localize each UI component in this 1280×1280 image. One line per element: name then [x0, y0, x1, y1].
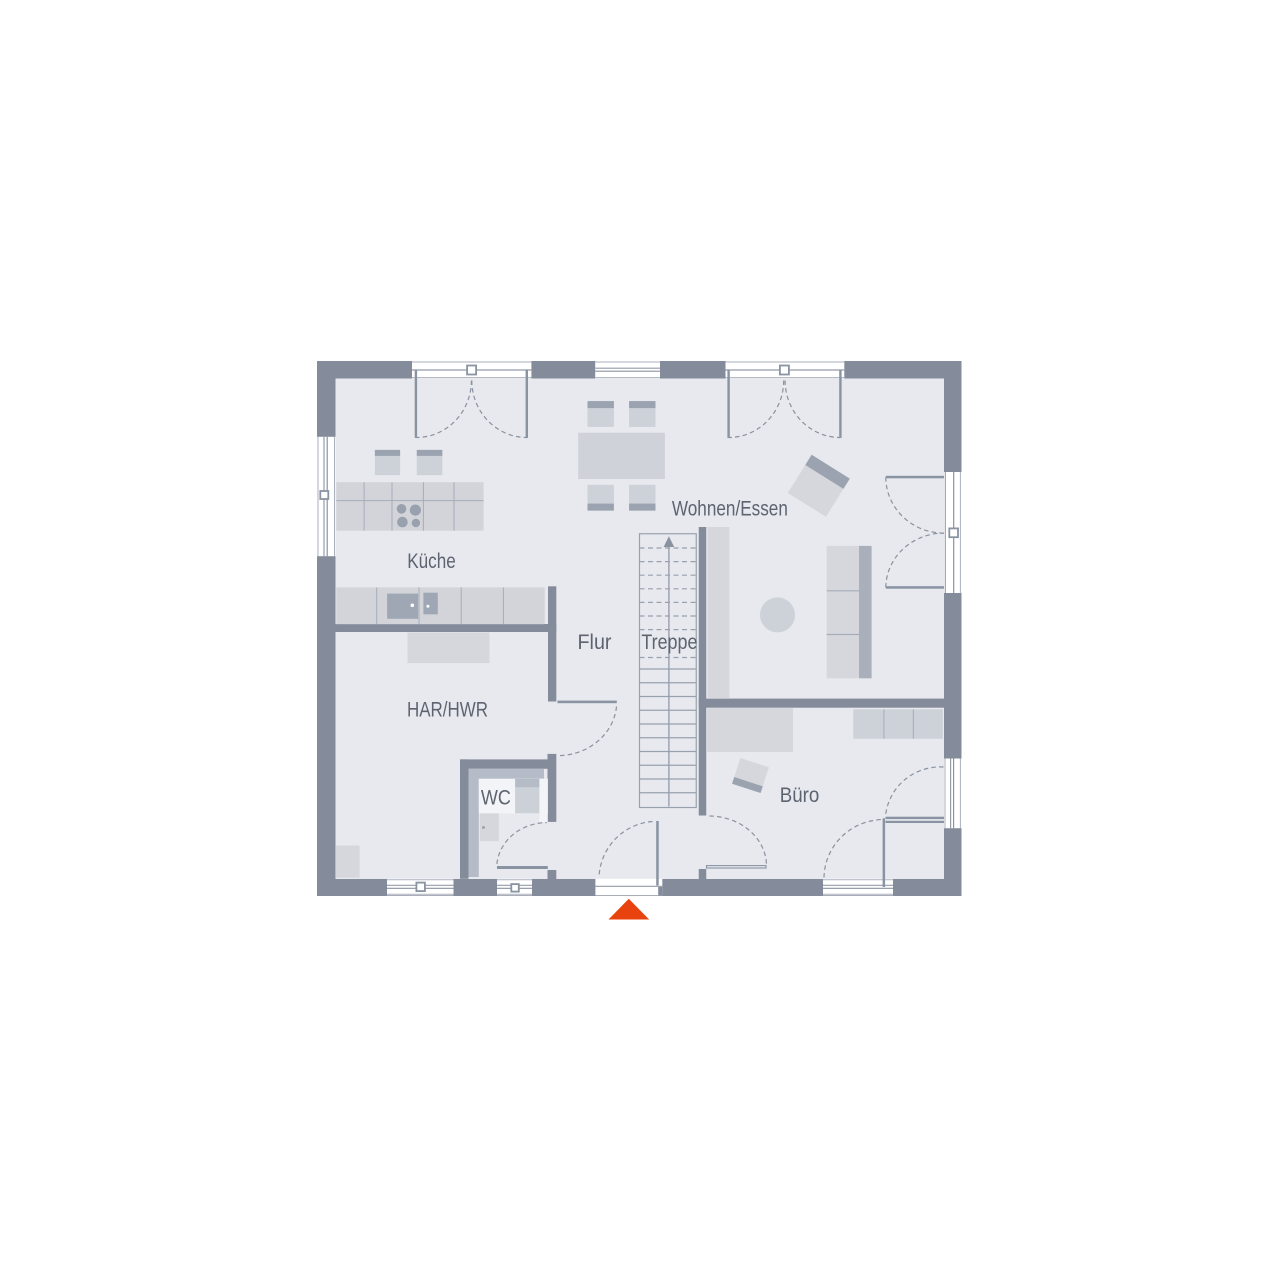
- svg-text:Büro: Büro: [780, 784, 820, 807]
- svg-text:Treppe: Treppe: [641, 631, 697, 654]
- svg-text:Küche: Küche: [407, 550, 456, 573]
- svg-text:Wohnen/Essen: Wohnen/Essen: [672, 497, 788, 520]
- svg-text:HAR/HWR: HAR/HWR: [407, 698, 488, 721]
- svg-text:WC: WC: [481, 787, 511, 810]
- svg-text:Flur: Flur: [578, 631, 612, 654]
